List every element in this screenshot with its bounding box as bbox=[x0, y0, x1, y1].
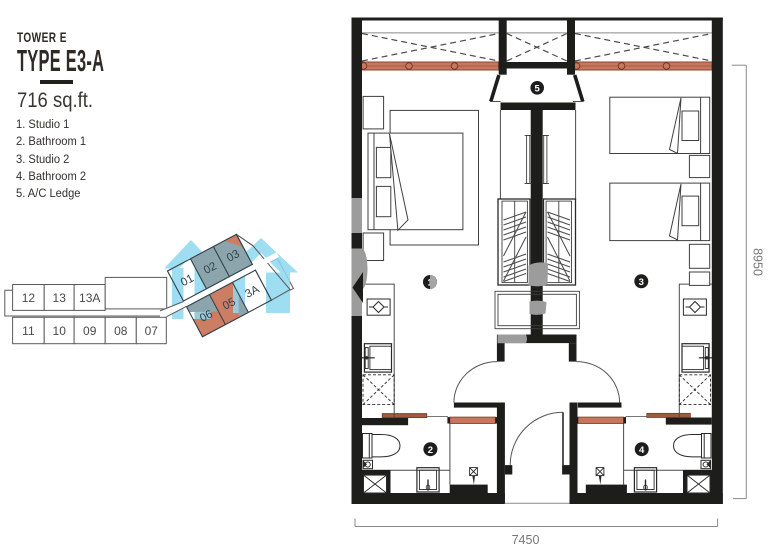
svg-text:4: 4 bbox=[639, 445, 645, 456]
svg-text:09: 09 bbox=[83, 324, 97, 338]
svg-text:7450: 7450 bbox=[512, 533, 540, 547]
svg-text:5: 5 bbox=[535, 83, 541, 94]
svg-text:8950: 8950 bbox=[751, 248, 765, 276]
svg-text:13: 13 bbox=[53, 291, 67, 305]
svg-text:11: 11 bbox=[22, 324, 35, 338]
svg-text:07: 07 bbox=[145, 324, 159, 338]
svg-text:08: 08 bbox=[114, 324, 128, 338]
svg-text:3: 3 bbox=[639, 277, 644, 288]
svg-text:13A: 13A bbox=[79, 291, 100, 305]
svg-text:2: 2 bbox=[428, 445, 433, 456]
svg-text:10: 10 bbox=[53, 324, 67, 338]
svg-text:12: 12 bbox=[22, 291, 36, 305]
